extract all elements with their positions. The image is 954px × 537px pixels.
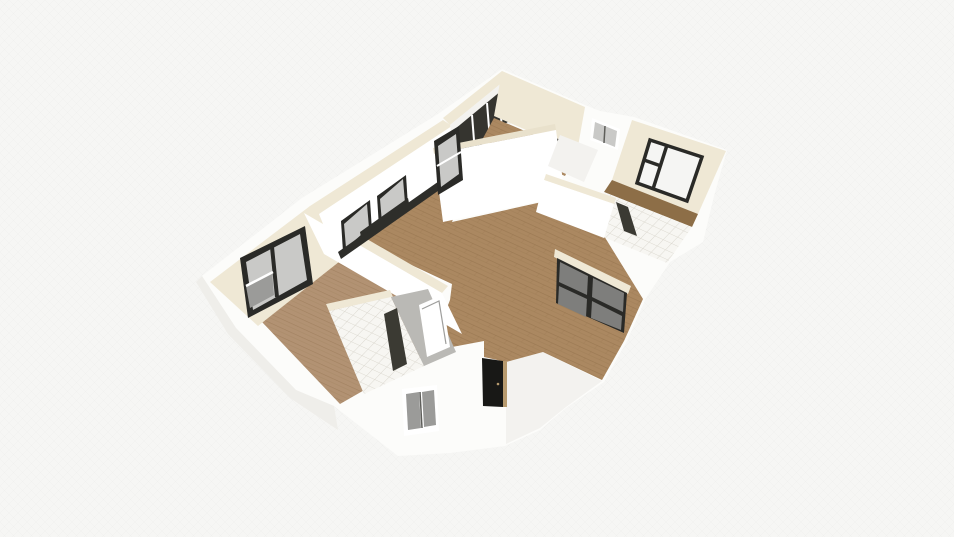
design-canvas: [0, 0, 954, 537]
hallway-door-stile: [604, 126, 605, 143]
front-door: [482, 358, 503, 407]
facade-window-pane-right: [422, 390, 436, 427]
facade-window-pane-left: [406, 392, 421, 430]
floorplan-3d-viewport[interactable]: [0, 0, 954, 537]
front-door-knob: [497, 383, 500, 386]
front-door-frame: [503, 361, 507, 407]
